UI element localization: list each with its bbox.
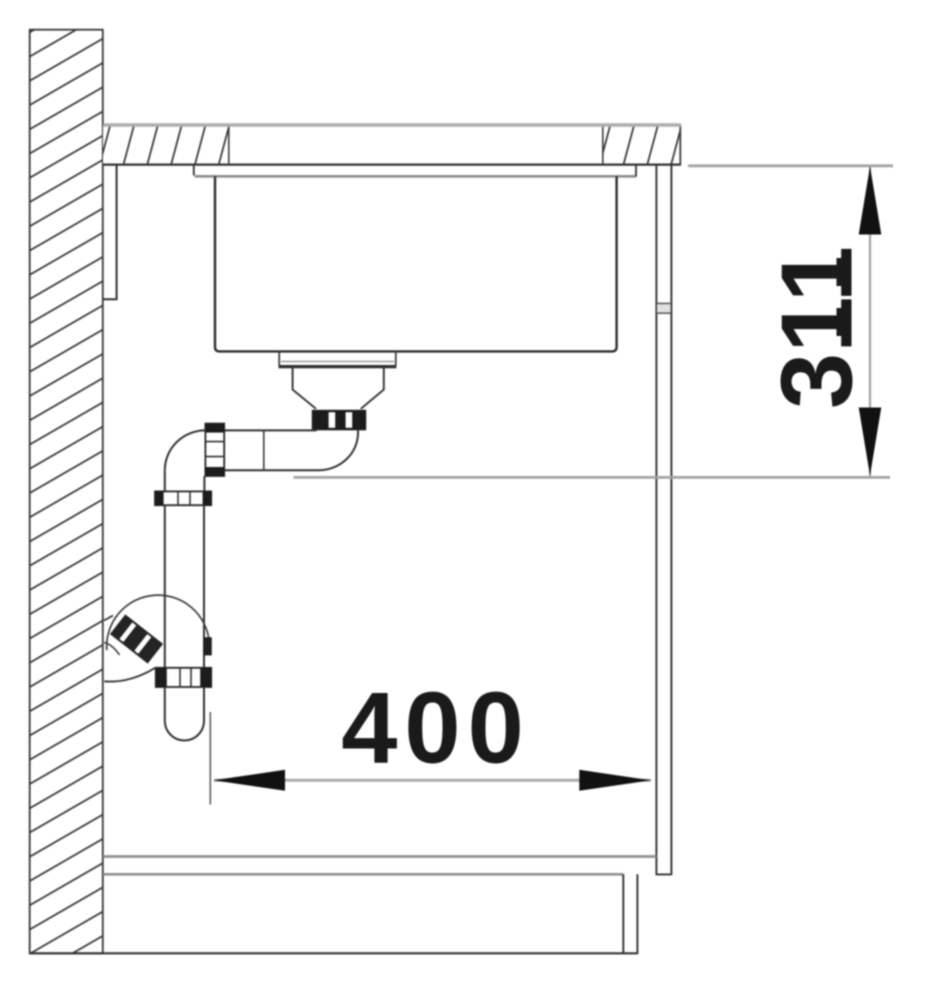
svg-text:400: 400 xyxy=(341,673,531,785)
svg-text:311: 311 xyxy=(762,246,874,409)
